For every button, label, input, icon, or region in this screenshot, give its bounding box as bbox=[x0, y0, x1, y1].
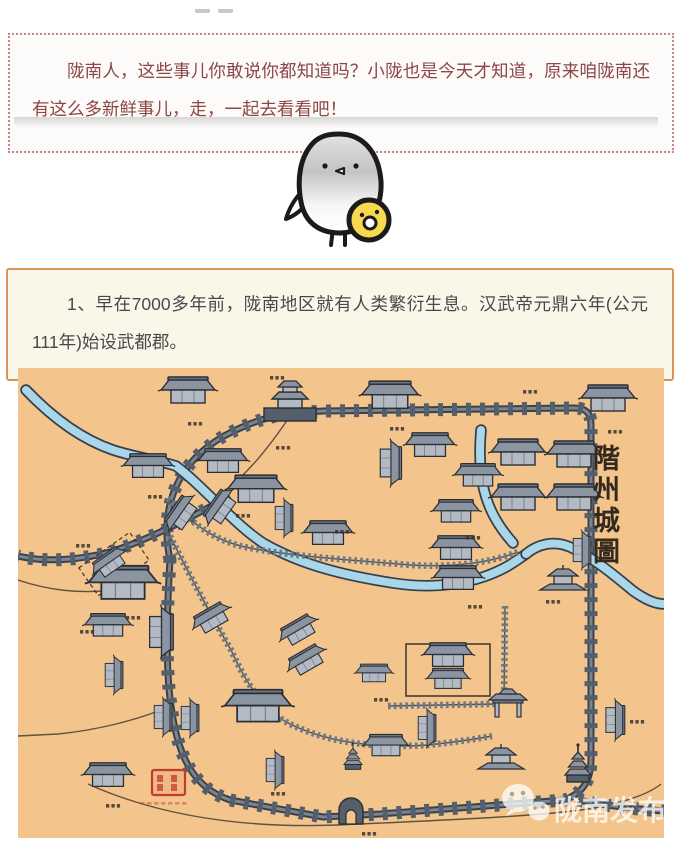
map-label-marks bbox=[630, 720, 644, 724]
intro-box-shadow bbox=[14, 117, 658, 128]
map-label-marks bbox=[466, 536, 480, 540]
map-label-marks bbox=[546, 600, 560, 604]
fact-text: 1、早在7000多年前，陇南地区就有人类繁衍生息。汉武帝元鼎六年(公元111年)… bbox=[32, 285, 648, 361]
mascot-illustration bbox=[0, 128, 682, 250]
svg-text:城: 城 bbox=[593, 506, 620, 537]
map-paved-road bbox=[504, 606, 505, 702]
map-label-marks bbox=[276, 446, 290, 450]
map-label-marks bbox=[374, 698, 388, 702]
map-label-marks bbox=[523, 390, 537, 394]
map-label-marks bbox=[126, 616, 140, 620]
svg-text:階: 階 bbox=[593, 444, 620, 475]
mascot-eye bbox=[322, 163, 327, 168]
watermark-text: 陇南发布 bbox=[554, 794, 664, 826]
map-label-marks bbox=[335, 530, 349, 534]
map-south-gate bbox=[339, 798, 363, 824]
map-label-marks bbox=[76, 544, 90, 548]
map-label-marks bbox=[188, 422, 202, 426]
map-label-marks bbox=[608, 430, 622, 434]
chick-eye bbox=[360, 213, 364, 217]
map-label-marks bbox=[236, 514, 250, 518]
fact-text-box: 1、早在7000多年前，陇南地区就有人类繁衍生息。汉武帝元鼎六年(公元111年)… bbox=[6, 268, 674, 381]
map-label-marks bbox=[390, 427, 404, 431]
jiezhou-city-map-illustration: 階州城圖陇南发布 bbox=[18, 368, 664, 838]
chick-beak bbox=[364, 217, 376, 229]
cropped-top-image-remnant bbox=[195, 0, 255, 4]
map-label-marks bbox=[80, 630, 94, 634]
map-label-marks bbox=[148, 495, 162, 499]
map-label-marks bbox=[362, 832, 376, 836]
chick-eye bbox=[375, 210, 379, 214]
mascot-eye bbox=[353, 163, 358, 168]
svg-text:州: 州 bbox=[593, 475, 620, 506]
map-label-marks bbox=[271, 792, 285, 796]
map-title: 階州城圖 bbox=[593, 444, 620, 568]
svg-text:圖: 圖 bbox=[593, 537, 620, 568]
map-label-marks bbox=[468, 605, 482, 609]
map-label-marks bbox=[270, 376, 284, 380]
chick-mascot-icon bbox=[281, 128, 401, 250]
map-label-marks bbox=[106, 804, 120, 808]
